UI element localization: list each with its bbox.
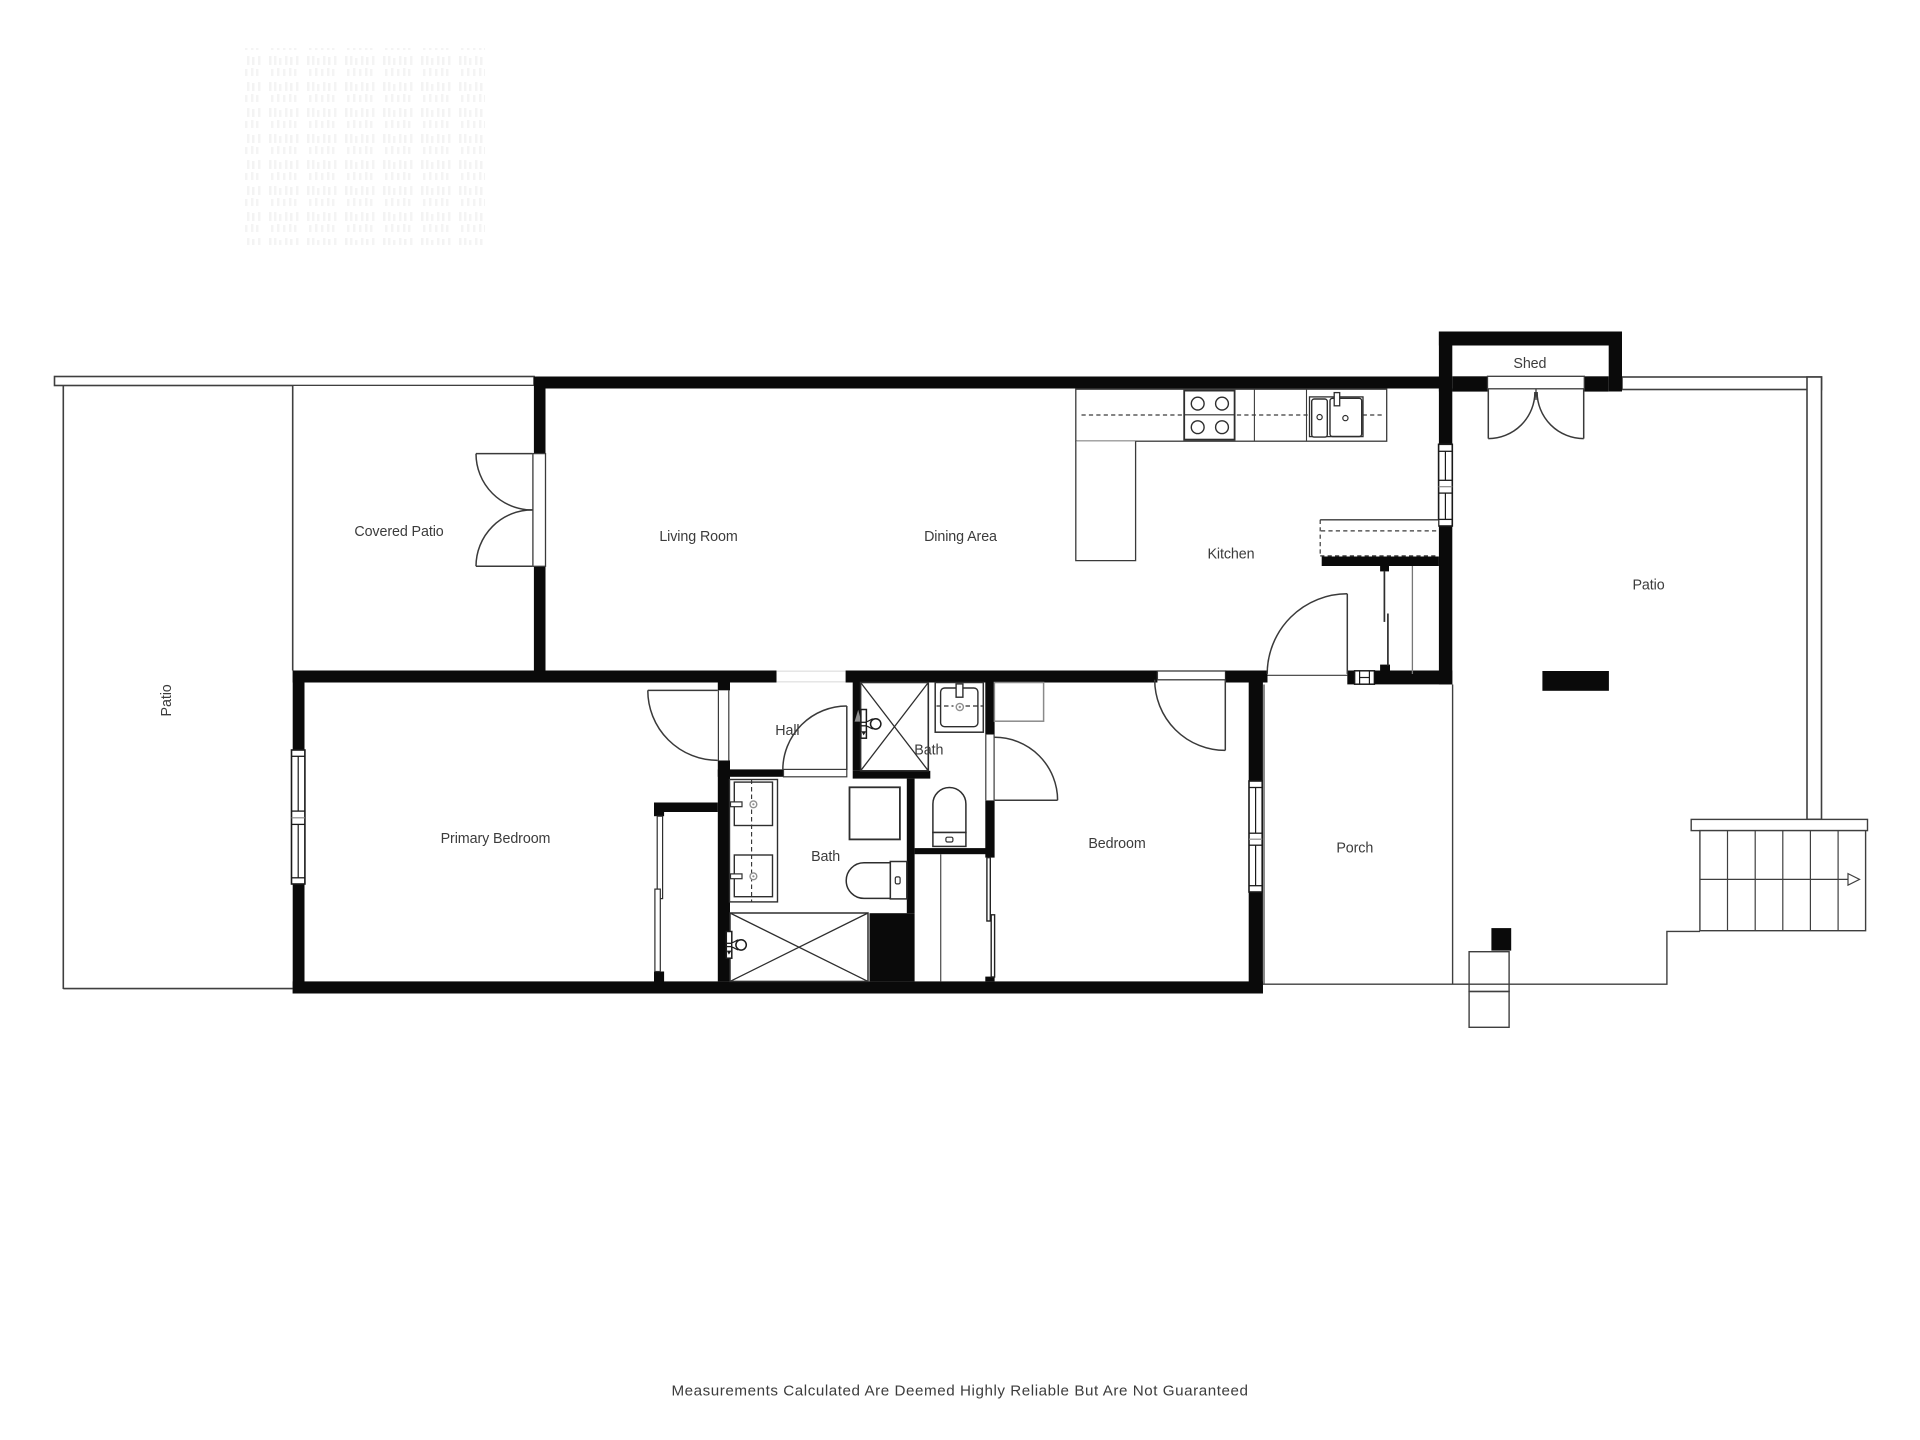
svg-text:Porch: Porch — [1336, 841, 1373, 857]
svg-text:Bath: Bath — [811, 849, 840, 865]
svg-text:Dining Area: Dining Area — [924, 529, 997, 545]
svg-text:Living Room: Living Room — [659, 529, 737, 545]
svg-text:Bath: Bath — [914, 743, 943, 759]
svg-text:Hall: Hall — [775, 723, 799, 739]
svg-text:Kitchen: Kitchen — [1208, 547, 1255, 563]
svg-text:Patio: Patio — [159, 684, 175, 716]
svg-text:Shed: Shed — [1513, 356, 1546, 372]
svg-text:Primary Bedroom: Primary Bedroom — [441, 831, 551, 847]
svg-text:Covered Patio: Covered Patio — [354, 524, 443, 540]
svg-text:Bedroom: Bedroom — [1088, 836, 1145, 852]
svg-text:Measurements Calculated Are De: Measurements Calculated Are Deemed Highl… — [671, 1383, 1248, 1400]
svg-text:Patio: Patio — [1632, 578, 1664, 594]
